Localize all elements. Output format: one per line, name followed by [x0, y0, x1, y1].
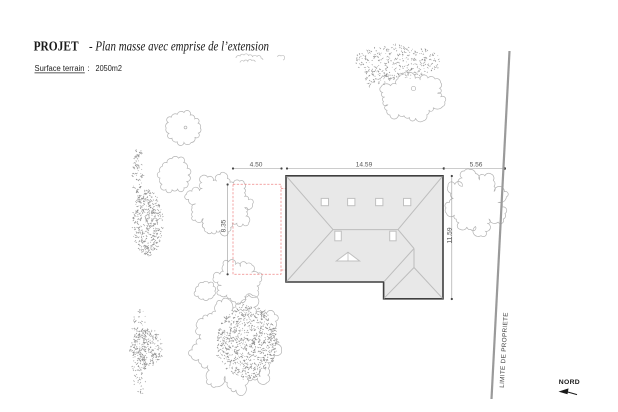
svg-text:5.56: 5.56 [470, 161, 483, 168]
svg-text:PROJET: PROJET [34, 40, 80, 55]
svg-text:4.50: 4.50 [250, 161, 263, 168]
svg-text:LIMITE DE PROPRIETE: LIMITE DE PROPRIETE [499, 312, 510, 388]
svg-text:8.35: 8.35 [220, 219, 227, 232]
svg-text:- Plan masse avec emprise de l: - Plan masse avec emprise de l’extension [89, 39, 269, 54]
svg-text::: : [87, 64, 89, 73]
svg-text:Surface terrain: Surface terrain [35, 64, 85, 73]
svg-text:NORD: NORD [559, 379, 580, 386]
svg-text:2050m2: 2050m2 [96, 64, 123, 73]
svg-text:11.59: 11.59 [447, 227, 454, 243]
svg-text:14.59: 14.59 [356, 161, 373, 168]
